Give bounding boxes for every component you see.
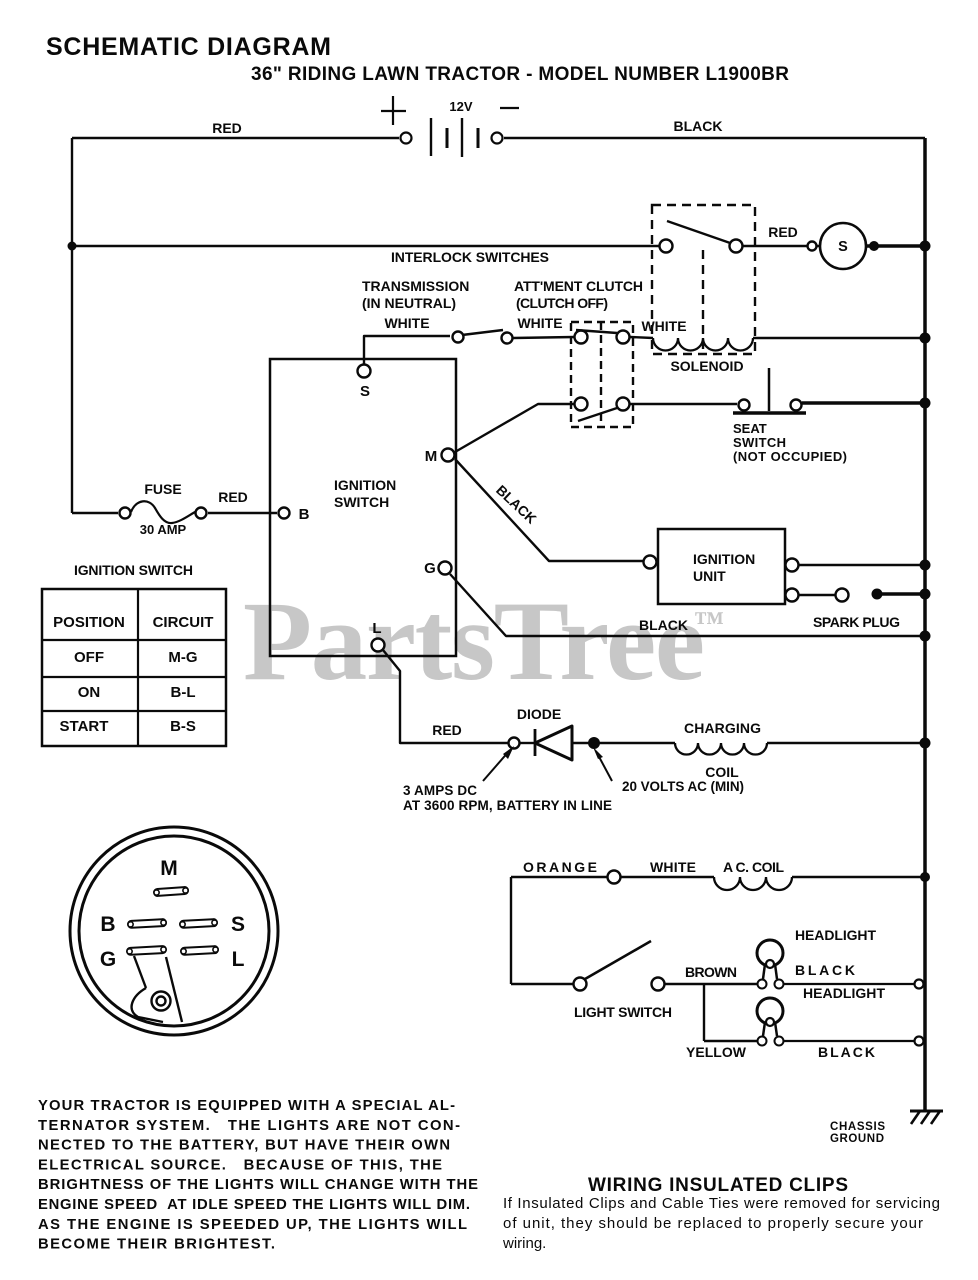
svg-text:BLACK: BLACK xyxy=(639,617,688,633)
svg-text:RED: RED xyxy=(432,722,462,738)
svg-text:IGNITION: IGNITION xyxy=(334,477,396,493)
svg-text:IGNITION: IGNITION xyxy=(693,551,755,567)
svg-text:OFF: OFF xyxy=(74,649,104,666)
svg-text:WHITE: WHITE xyxy=(517,315,562,331)
svg-text:CHASSIS: CHASSIS xyxy=(830,1121,885,1133)
svg-text:ELECTRICAL SOURCE. BECAUSE O: ELECTRICAL SOURCE. BECAUSE OF THIS, THE xyxy=(38,1157,442,1173)
svg-text:(IN NEUTRAL): (IN NEUTRAL) xyxy=(362,295,456,311)
svg-text:SOLENOID: SOLENOID xyxy=(670,358,743,374)
svg-text:INTERLOCK SWITCHES: INTERLOCK SWITCHES xyxy=(391,249,549,265)
svg-text:AT 3600 RPM, BATTERY IN LINE: AT 3600 RPM, BATTERY IN LINE xyxy=(403,798,612,813)
svg-text:GROUND: GROUND xyxy=(830,1133,884,1145)
svg-text:RED: RED xyxy=(768,224,798,240)
svg-text:WIRING INSULATED CLIPS: WIRING INSULATED CLIPS xyxy=(588,1175,848,1196)
svg-text:UNIT: UNIT xyxy=(693,568,726,584)
svg-text:20 VOLTS AC (MIN): 20 VOLTS AC (MIN) xyxy=(622,779,744,794)
svg-text:BROWN: BROWN xyxy=(685,964,737,980)
svg-text:L: L xyxy=(232,948,245,971)
svg-text:S: S xyxy=(360,383,370,400)
svg-text:3 AMPS DC: 3 AMPS DC xyxy=(403,783,477,798)
svg-text:YELLOW: YELLOW xyxy=(686,1044,747,1060)
svg-text:SWITCH: SWITCH xyxy=(334,494,389,510)
svg-text:WHITE: WHITE xyxy=(641,318,686,334)
svg-text:CIRCUIT: CIRCUIT xyxy=(153,614,214,631)
svg-text:M-G: M-G xyxy=(168,649,197,666)
svg-text:HEADLIGHT: HEADLIGHT xyxy=(803,985,885,1001)
svg-text:(NOT OCCUPIED): (NOT OCCUPIED) xyxy=(733,449,847,464)
svg-text:SPARK PLUG: SPARK PLUG xyxy=(813,614,900,630)
svg-text:of unit, they should be replac: of unit, they should be replaced to prop… xyxy=(503,1215,923,1232)
svg-text:START: START xyxy=(60,718,109,735)
svg-text:BRIGHTNESS OF THE LIGHTS WILL: BRIGHTNESS OF THE LIGHTS WILL CHANGE WIT… xyxy=(38,1177,478,1193)
svg-text:S: S xyxy=(231,913,245,936)
svg-text:™: ™ xyxy=(694,606,724,639)
svg-text:POSITION: POSITION xyxy=(53,614,125,631)
svg-text:36" RIDING LAWN TRACTOR - MODE: 36" RIDING LAWN TRACTOR - MODEL NUMBER L… xyxy=(251,64,789,85)
svg-text:SEAT: SEAT xyxy=(733,421,767,436)
svg-text:ENGINE SPEED AT IDLE SPEED TH: ENGINE SPEED AT IDLE SPEED THE LIGHTS WI… xyxy=(38,1197,470,1213)
svg-text:FUSE: FUSE xyxy=(144,481,181,497)
svg-text:SCHEMATIC DIAGRAM: SCHEMATIC DIAGRAM xyxy=(46,33,331,61)
svg-text:PartsTree: PartsTree xyxy=(243,579,705,704)
svg-text:ON: ON xyxy=(78,684,101,701)
svg-text:BECOME THEIR BRIGHTEST.: BECOME THEIR BRIGHTEST. xyxy=(38,1237,275,1253)
svg-text:wiring.: wiring. xyxy=(502,1235,546,1252)
svg-text:COIL: COIL xyxy=(705,764,739,780)
svg-text:30 AMP: 30 AMP xyxy=(140,522,187,537)
svg-text:A C. COIL: A C. COIL xyxy=(723,859,784,875)
svg-text:LIGHT SWITCH: LIGHT SWITCH xyxy=(574,1004,672,1020)
svg-text:B: B xyxy=(100,913,115,936)
svg-text:M: M xyxy=(425,448,438,465)
svg-text:(CLUTCH OFF): (CLUTCH OFF) xyxy=(516,295,608,311)
svg-text:BLACK: BLACK xyxy=(674,118,723,134)
svg-text:CHARGING: CHARGING xyxy=(684,720,761,736)
svg-text:WHITE: WHITE xyxy=(384,315,429,331)
svg-text:SWITCH: SWITCH xyxy=(733,435,786,450)
svg-text:B-S: B-S xyxy=(170,718,196,735)
svg-text:DIODE: DIODE xyxy=(517,706,561,722)
svg-text:B-L: B-L xyxy=(171,684,196,701)
svg-text:RED: RED xyxy=(218,489,248,505)
svg-text:TERNATOR SYSTEM. THE LIGHTS: TERNATOR SYSTEM. THE LIGHTS ARE NOT CON- xyxy=(38,1118,460,1134)
svg-text:IGNITION SWITCH: IGNITION SWITCH xyxy=(74,562,193,578)
svg-text:WHITE: WHITE xyxy=(650,859,696,875)
svg-text:S: S xyxy=(838,239,848,255)
svg-text:YOUR TRACTOR IS EQUIPPED WITH: YOUR TRACTOR IS EQUIPPED WITH A SPECIAL … xyxy=(38,1098,455,1114)
svg-text:ATT'MENT CLUTCH: ATT'MENT CLUTCH xyxy=(514,278,643,294)
svg-text:BLACK: BLACK xyxy=(795,962,855,978)
svg-text:HEADLIGHT: HEADLIGHT xyxy=(795,927,876,943)
svg-text:L: L xyxy=(372,620,381,637)
svg-text:B: B xyxy=(299,506,310,523)
svg-text:12V: 12V xyxy=(449,99,472,114)
svg-text:BLACK: BLACK xyxy=(818,1044,875,1060)
svg-text:G: G xyxy=(100,948,116,971)
svg-text:TRANSMISSION: TRANSMISSION xyxy=(362,278,469,294)
svg-text:AS THE ENGINE IS SPEEDED UP, T: AS THE ENGINE IS SPEEDED UP, THE LIGHTS … xyxy=(38,1217,467,1233)
svg-text:G: G xyxy=(424,560,436,577)
svg-text:If Insulated Clips and Cable T: If Insulated Clips and Cable Ties were r… xyxy=(503,1195,940,1212)
svg-text:M: M xyxy=(160,857,178,880)
svg-text:NECTED TO THE BATTERY, BUT HAV: NECTED TO THE BATTERY, BUT HAVE THEIR OW… xyxy=(38,1138,450,1154)
svg-text:RED: RED xyxy=(212,120,242,136)
